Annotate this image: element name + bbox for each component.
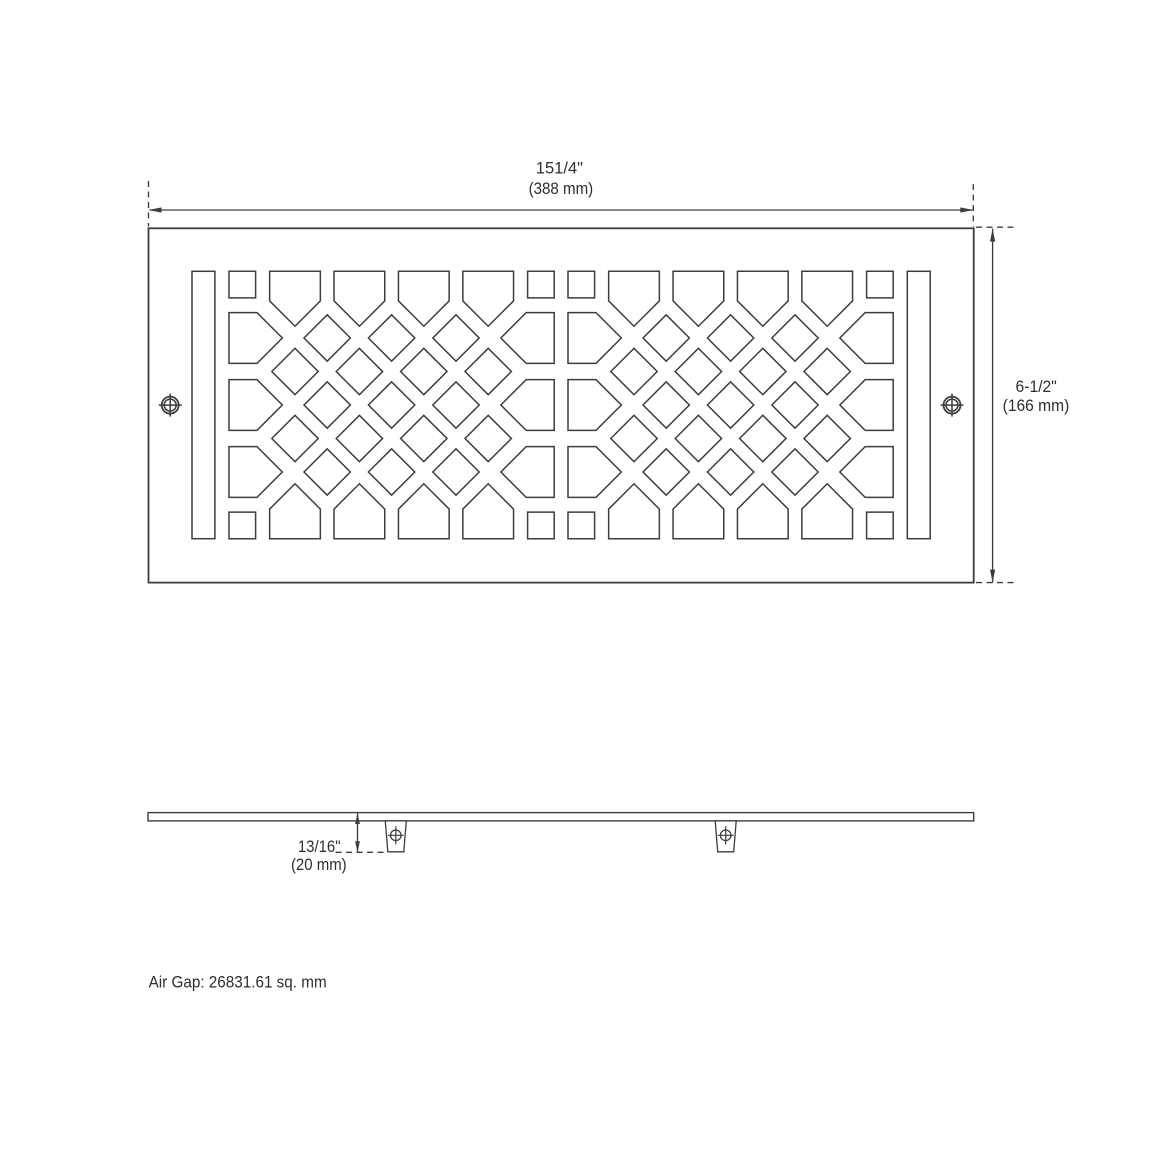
svg-text:151/4": 151/4" (536, 159, 583, 178)
svg-text:(166 mm): (166 mm) (1003, 396, 1070, 415)
svg-text:Air Gap: 26831.61 sq. mm: Air Gap: 26831.61 sq. mm (149, 973, 327, 992)
svg-text:(388 mm): (388 mm) (529, 179, 594, 198)
svg-text:13/16": 13/16" (298, 837, 341, 856)
svg-text:6-1/2": 6-1/2" (1016, 377, 1057, 396)
svg-text:(20 mm): (20 mm) (291, 855, 347, 874)
